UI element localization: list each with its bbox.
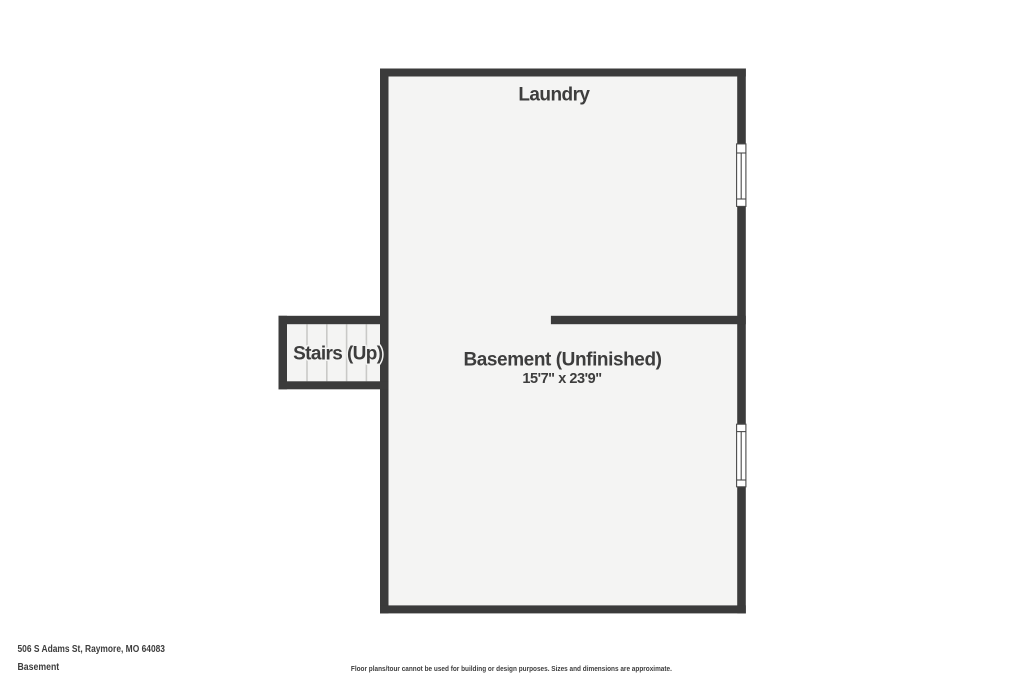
svg-text:Laundry: Laundry: [518, 84, 590, 105]
svg-text:506 S Adams St, Raymore, MO 64: 506 S Adams St, Raymore, MO 64083: [18, 643, 165, 655]
svg-text:Basement (Unfinished): Basement (Unfinished): [463, 349, 661, 370]
svg-text:Basement: Basement: [17, 661, 59, 673]
svg-text:Stairs (Up): Stairs (Up): [293, 344, 383, 365]
svg-text:Floor plans/tour cannot be use: Floor plans/tour cannot be used for buil…: [351, 666, 672, 674]
svg-text:15'7" x 23'9": 15'7" x 23'9": [522, 371, 601, 387]
